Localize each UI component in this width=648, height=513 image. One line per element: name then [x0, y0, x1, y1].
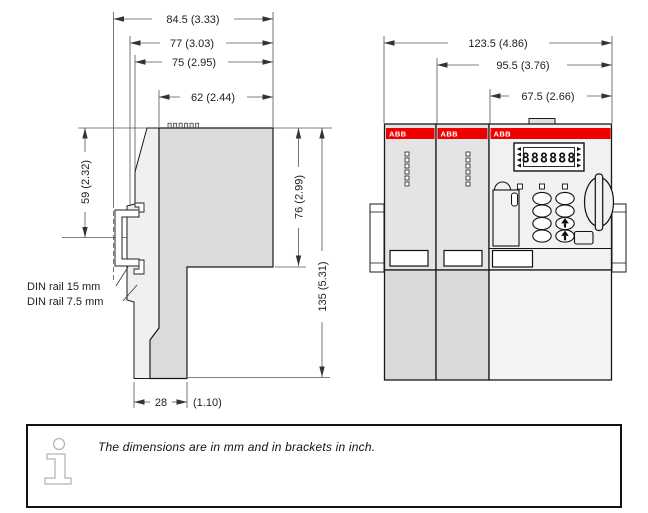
label-plate	[444, 251, 482, 267]
svg-text:77 (3.03): 77 (3.03)	[170, 38, 214, 50]
svg-text:(1.10): (1.10)	[193, 397, 222, 409]
io-module-2-base	[436, 270, 489, 380]
svg-text:76 (2.99): 76 (2.99)	[294, 175, 306, 219]
brand-bars: ABB ABB ABB	[386, 128, 611, 139]
side-view-drawing: 84.5 (3.33) 77 (3.03) 75 (2.95) 62 (2.44…	[27, 12, 332, 409]
dim-95-5: 95.5 (3.76)	[437, 60, 612, 72]
svg-text:84.5 (3.33): 84.5 (3.33)	[166, 14, 219, 26]
svg-text:67.5 (2.66): 67.5 (2.66)	[521, 91, 574, 103]
svg-text:123.5 (4.86): 123.5 (4.86)	[468, 38, 527, 50]
din-rail-15-label: DIN rail 15 mm	[27, 281, 100, 293]
dim-75: 75 (2.95)	[135, 57, 273, 69]
note-text: The dimensions are in mm and in brackets…	[98, 440, 375, 454]
svg-text:135 (5.31): 135 (5.31)	[317, 261, 329, 311]
svg-text:95.5 (3.76): 95.5 (3.76)	[496, 60, 549, 72]
dimension-drawing-page: 84.5 (3.33) 77 (3.03) 75 (2.95) 62 (2.44…	[0, 0, 648, 513]
dim-76: 76 (2.99)	[294, 128, 306, 266]
dim-135: 135 (5.31)	[317, 128, 329, 377]
dim-77: 77 (3.03)	[130, 38, 273, 50]
din-rail-7-5-label: DIN rail 7.5 mm	[27, 296, 103, 308]
io-module-1	[385, 124, 437, 270]
svg-text:59 (2.32): 59 (2.32)	[80, 160, 92, 204]
label-plate	[493, 251, 533, 268]
mounting-ear-right	[612, 204, 626, 272]
din-rail-labels: DIN rail 15 mm DIN rail 7.5 mm	[27, 267, 137, 308]
io-module-2	[436, 124, 489, 270]
abb-logo: ABB	[494, 130, 512, 139]
display-value: 888888	[522, 151, 577, 167]
dim-59: 59 (2.32)	[80, 128, 92, 238]
svg-text:75 (2.95): 75 (2.95)	[172, 57, 216, 69]
info-icon	[44, 436, 76, 488]
front-view-drawing: ABB ABB ABB 888888	[370, 36, 626, 380]
dim-62: 62 (2.44)	[159, 92, 273, 104]
io-module-1-base	[385, 270, 437, 380]
svg-text:62 (2.44): 62 (2.44)	[191, 92, 235, 104]
plc-dimension-drawing: 84.5 (3.33) 77 (3.03) 75 (2.95) 62 (2.44…	[0, 0, 648, 420]
dim-67-5: 67.5 (2.66)	[490, 91, 612, 103]
top-tab	[529, 119, 555, 125]
dim-28: 28 (1.10)	[134, 397, 222, 409]
connector-cover	[575, 232, 594, 245]
cpu-module-base	[489, 270, 612, 380]
note-box: The dimensions are in mm and in brackets…	[26, 424, 622, 508]
side-main-body	[150, 128, 273, 379]
segment-display: 888888	[514, 143, 584, 171]
abb-logo: ABB	[389, 130, 407, 139]
vent-ridges	[168, 123, 199, 128]
dim-123-5: 123.5 (4.86)	[384, 38, 612, 50]
dim-84-5: 84.5 (3.33)	[114, 14, 274, 26]
mounting-ear-left	[370, 204, 384, 272]
label-plate	[390, 251, 428, 267]
battery-compartment	[493, 182, 519, 246]
svg-text:28: 28	[155, 397, 167, 409]
abb-logo: ABB	[441, 130, 459, 139]
